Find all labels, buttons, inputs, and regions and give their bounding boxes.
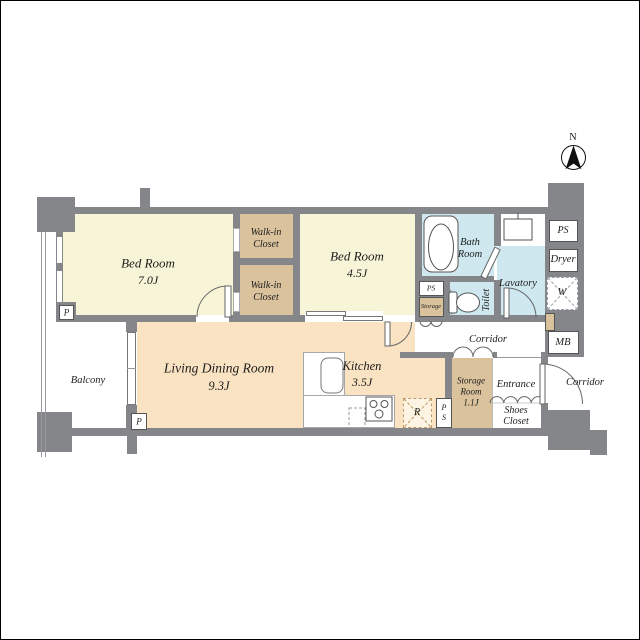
balcony-rail-line-inner xyxy=(45,232,46,457)
wall-bottom xyxy=(37,428,552,436)
wall-bath-lavatory xyxy=(494,214,501,246)
balcony-rail-line-outer xyxy=(41,232,42,457)
wic-upper-opening xyxy=(233,228,240,252)
pipe-marker-top-label: P xyxy=(64,308,70,317)
washer-label: W xyxy=(558,288,567,299)
wic-lower-label-1: Walk-in xyxy=(251,281,282,291)
bedroom2-sliding-panel-1 xyxy=(306,311,346,316)
bedroom-window-lower xyxy=(56,270,63,303)
wall-mid-band-1 xyxy=(56,315,196,322)
kitchen-label: Kitchen xyxy=(343,360,382,373)
living-dining-size: 9.3J xyxy=(208,380,229,393)
wall-top xyxy=(60,207,552,214)
pillar-top-right xyxy=(548,183,584,214)
storage-room-label-2: Room xyxy=(461,388,482,397)
wall-entrance-right-b xyxy=(541,403,548,428)
corridor-inner-label: Corridor xyxy=(469,335,507,346)
storage-room-label-1: Storage xyxy=(457,377,485,386)
shoes-closet-label-1: Shoes xyxy=(504,406,527,416)
bedroom-main-label: Bed Room xyxy=(121,257,175,270)
storage-room-size: 1.1J xyxy=(463,399,478,408)
living-dining-label: Living Dining Room xyxy=(164,361,274,375)
wall-wic-divider xyxy=(233,258,300,265)
wall-wic-bedroom2 xyxy=(293,214,300,315)
bedroom-second-label: Bed Room xyxy=(330,250,384,263)
bath-floor xyxy=(422,214,494,276)
compass-circle xyxy=(561,145,586,170)
wic-lower-opening xyxy=(233,292,240,312)
balcony-window-tick xyxy=(127,368,136,369)
storage-room-fold-doors xyxy=(453,347,493,357)
pillar-bottom-right-step xyxy=(590,430,607,455)
bath-label-1: Bath xyxy=(460,238,480,249)
ps-top-right-label: PS xyxy=(557,226,568,236)
meter-box-label: MB xyxy=(555,338,570,349)
storage-room-edge-line xyxy=(492,358,493,428)
compass-north-label: N xyxy=(569,133,576,143)
shoes-closet-label-2: Closet xyxy=(503,417,529,427)
kitchen-counter-bottom xyxy=(303,395,395,428)
small-tan-box xyxy=(545,313,555,331)
kitchen-size: 3.5J xyxy=(352,376,372,388)
ps-bathside-label: PS xyxy=(427,284,435,292)
bedroom-main-size: 7.0J xyxy=(138,274,158,286)
bedroom-second-size: 4.5J xyxy=(347,267,367,279)
pipe-marker-bottom-label: P xyxy=(136,417,142,426)
wic-upper-label-2: Closet xyxy=(253,240,279,250)
wall-entrance-right-a xyxy=(541,352,548,364)
ps-kitchen-label-s: S xyxy=(442,414,446,422)
wall-bedroom-wic-a xyxy=(233,214,240,228)
front-door-leaf xyxy=(540,364,545,404)
balcony-label: Balcony xyxy=(71,376,105,387)
bedroom2-sliding-panel-2 xyxy=(343,316,383,321)
ps-kitchen-label-p: P xyxy=(442,404,447,412)
bedroom-window-upper xyxy=(56,236,63,264)
wall-balcony-top-piece xyxy=(126,322,137,332)
lavatory-sink-icon xyxy=(504,219,532,240)
entrance-step-line xyxy=(497,357,541,358)
pillar-bottom-right xyxy=(548,410,590,450)
lavatory-label: Lavatory xyxy=(499,279,537,290)
bedroom-second-floor xyxy=(300,214,415,315)
dryer-label: Dryer xyxy=(550,255,575,266)
refrigerator-label: R xyxy=(414,408,420,418)
shoes-closet-fold-doors xyxy=(490,397,545,403)
floor-plan: Bed Room 7.0J Walk-in Closet Walk-in Clo… xyxy=(0,0,640,640)
bath-label-2: Room xyxy=(458,250,483,261)
wall-mid-band-2 xyxy=(229,315,305,322)
wic-upper-label-1: Walk-in xyxy=(251,228,282,238)
corridor-outer-label: Corridor xyxy=(566,378,604,389)
wall-stub-top xyxy=(140,188,150,207)
entrance-label: Entrance xyxy=(497,380,536,391)
storage-small-label: Storage xyxy=(421,304,441,311)
wall-bedroom-wic-c xyxy=(233,312,240,315)
wic-lower-label-2: Closet xyxy=(253,293,279,303)
toilet-label: Toilet xyxy=(482,289,492,311)
wall-stub-bottom xyxy=(127,436,137,454)
